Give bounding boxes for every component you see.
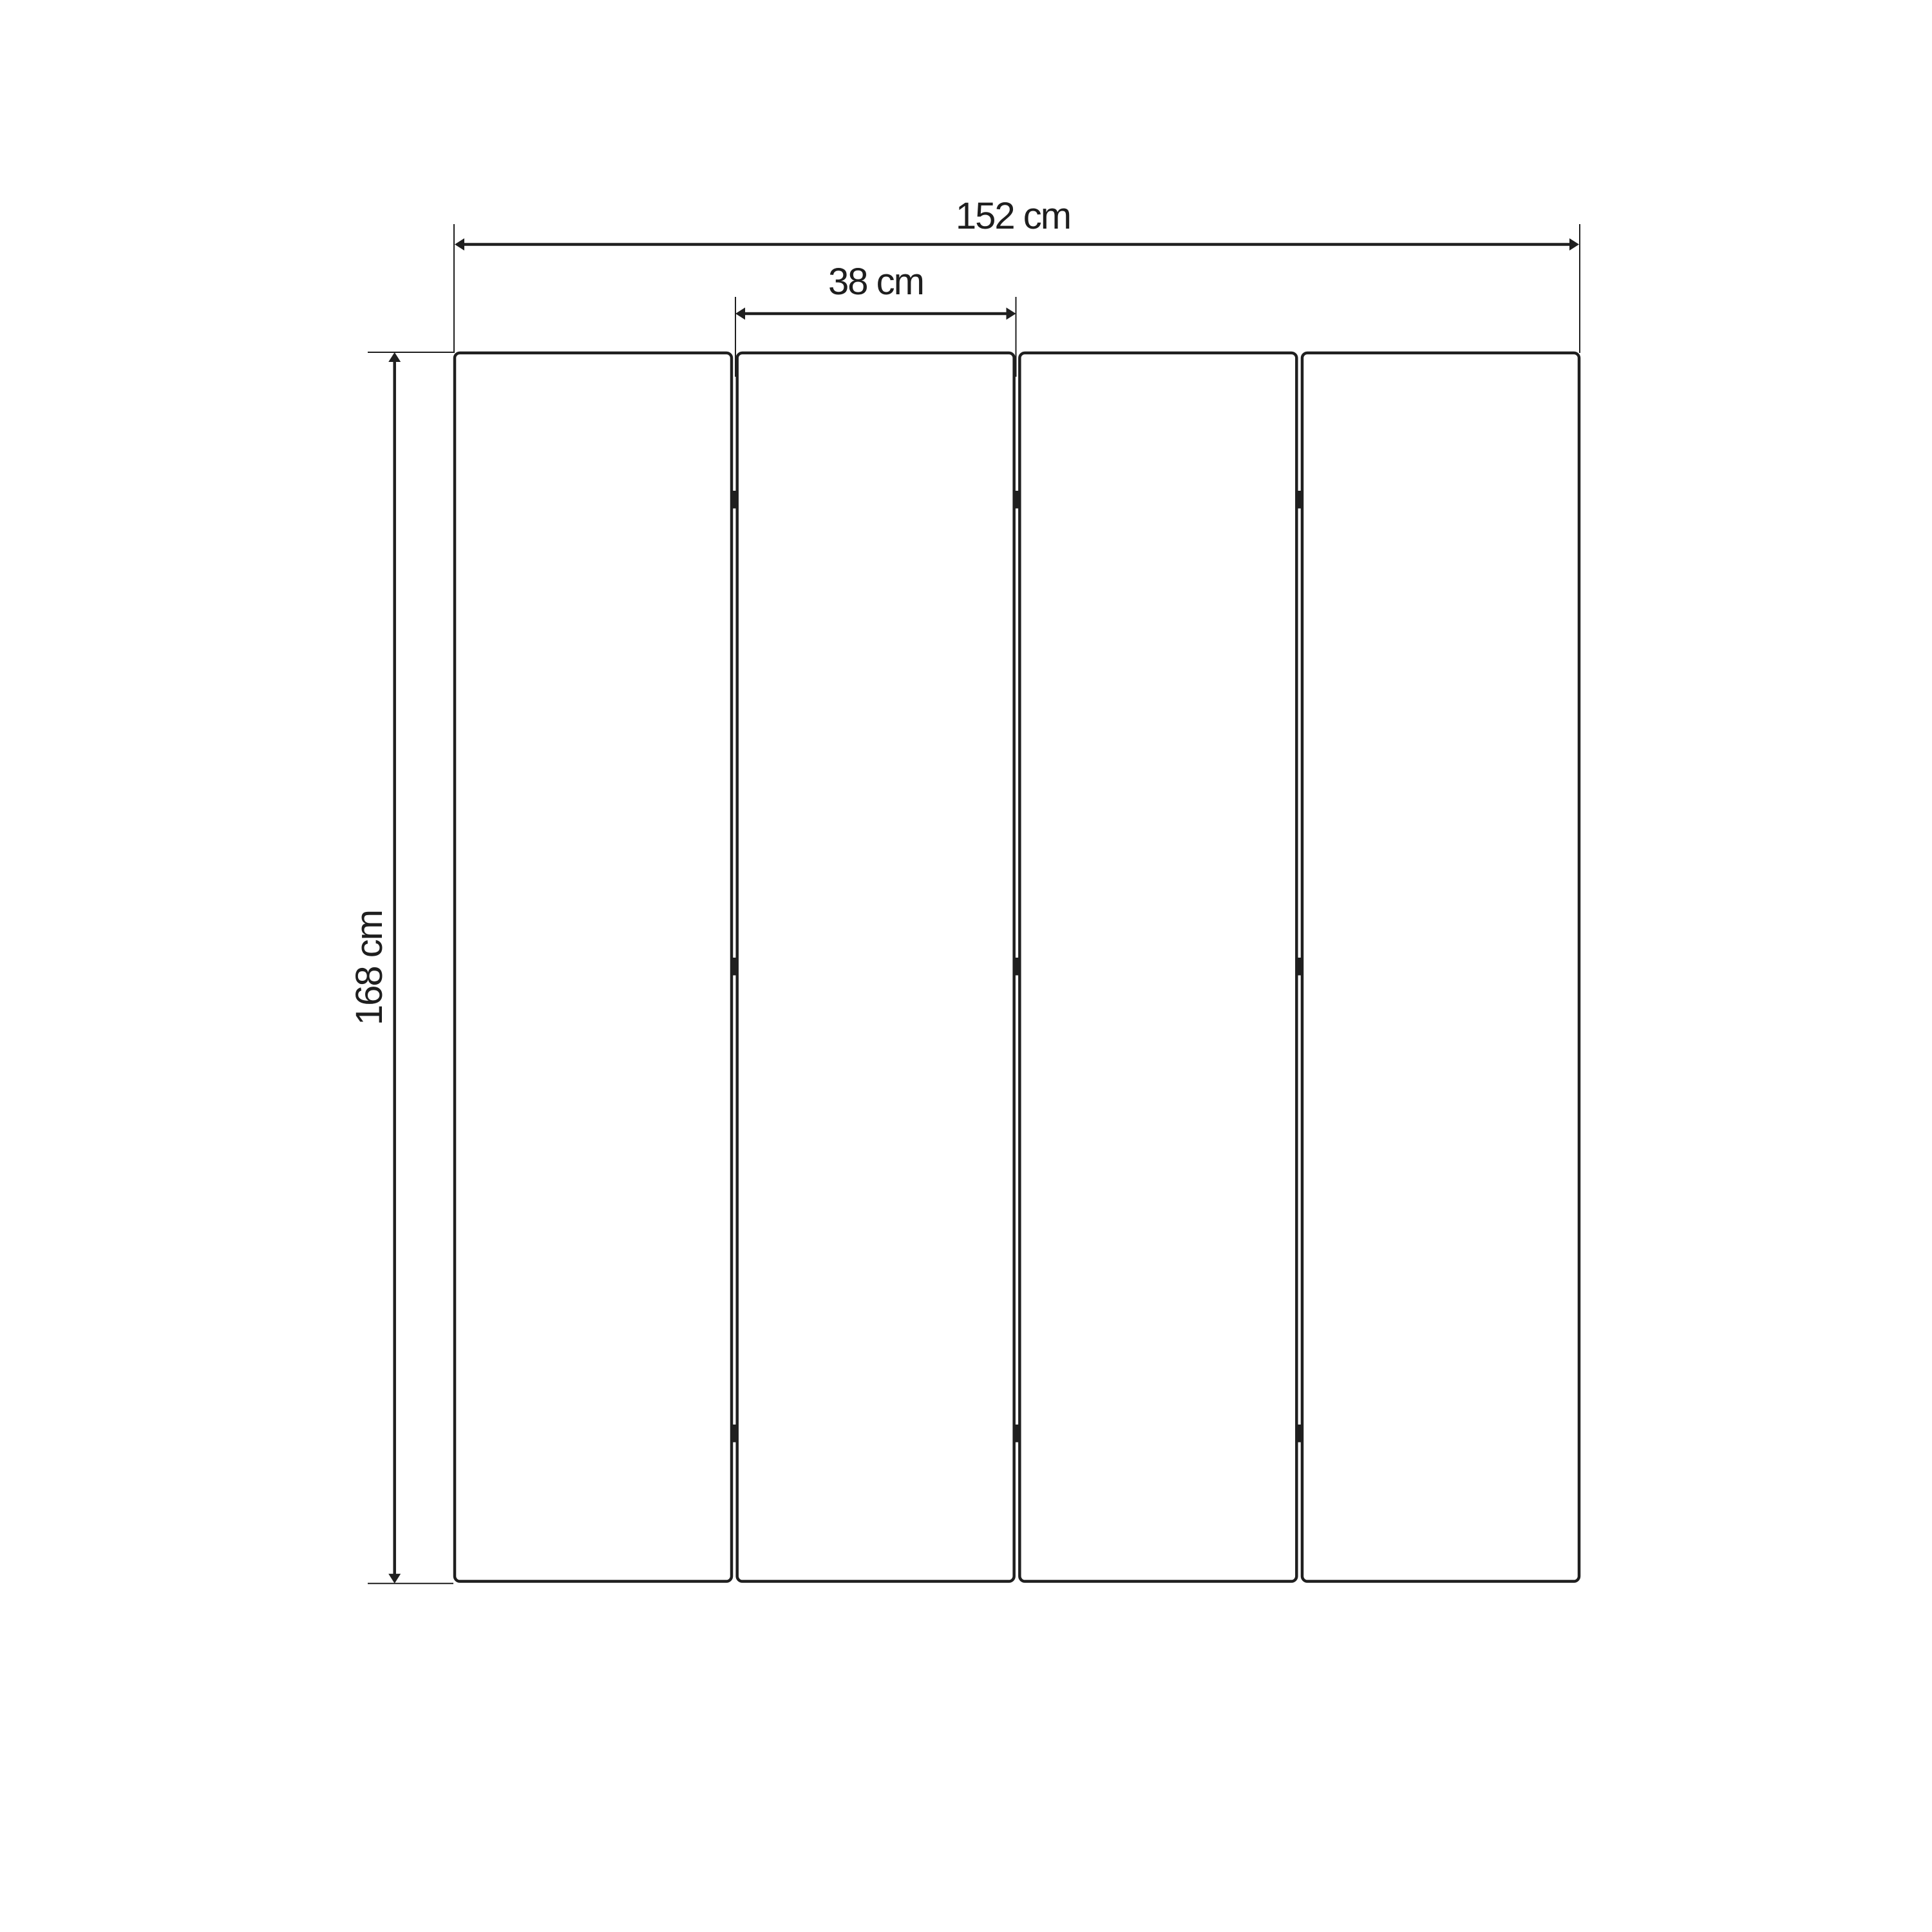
svg-text:168 cm: 168 cm [348,911,390,1025]
svg-text:38 cm: 38 cm [828,261,923,303]
svg-text:152 cm: 152 cm [956,195,1070,237]
